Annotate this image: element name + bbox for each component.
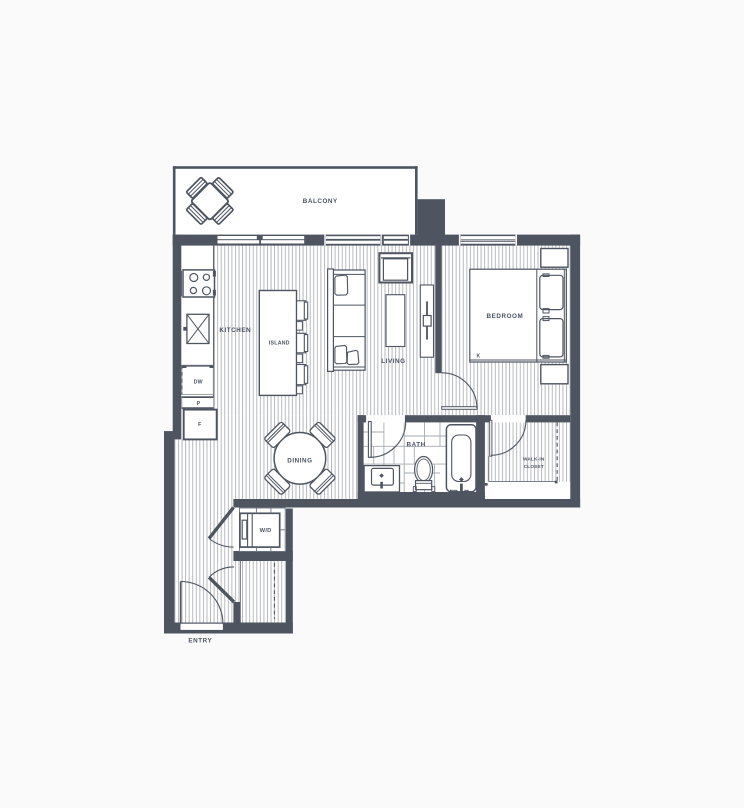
svg-text:CLOSET: CLOSET [524,464,544,469]
svg-text:K: K [476,353,480,359]
svg-text:DW: DW [194,379,203,385]
svg-text:BALCONY: BALCONY [303,198,338,205]
svg-text:LIVING: LIVING [381,358,405,365]
svg-text:W/D: W/D [260,528,272,534]
svg-text:BATH: BATH [406,442,425,449]
svg-text:ENTRY: ENTRY [188,638,212,645]
svg-text:WALK-IN: WALK-IN [523,456,545,461]
svg-text:KITCHEN: KITCHEN [219,327,251,334]
svg-text:ISLAND: ISLAND [269,340,290,346]
svg-text:BEDROOM: BEDROOM [487,313,524,320]
svg-text:F: F [198,422,201,428]
svg-text:DINING: DINING [287,458,312,465]
svg-text:P: P [197,401,201,407]
